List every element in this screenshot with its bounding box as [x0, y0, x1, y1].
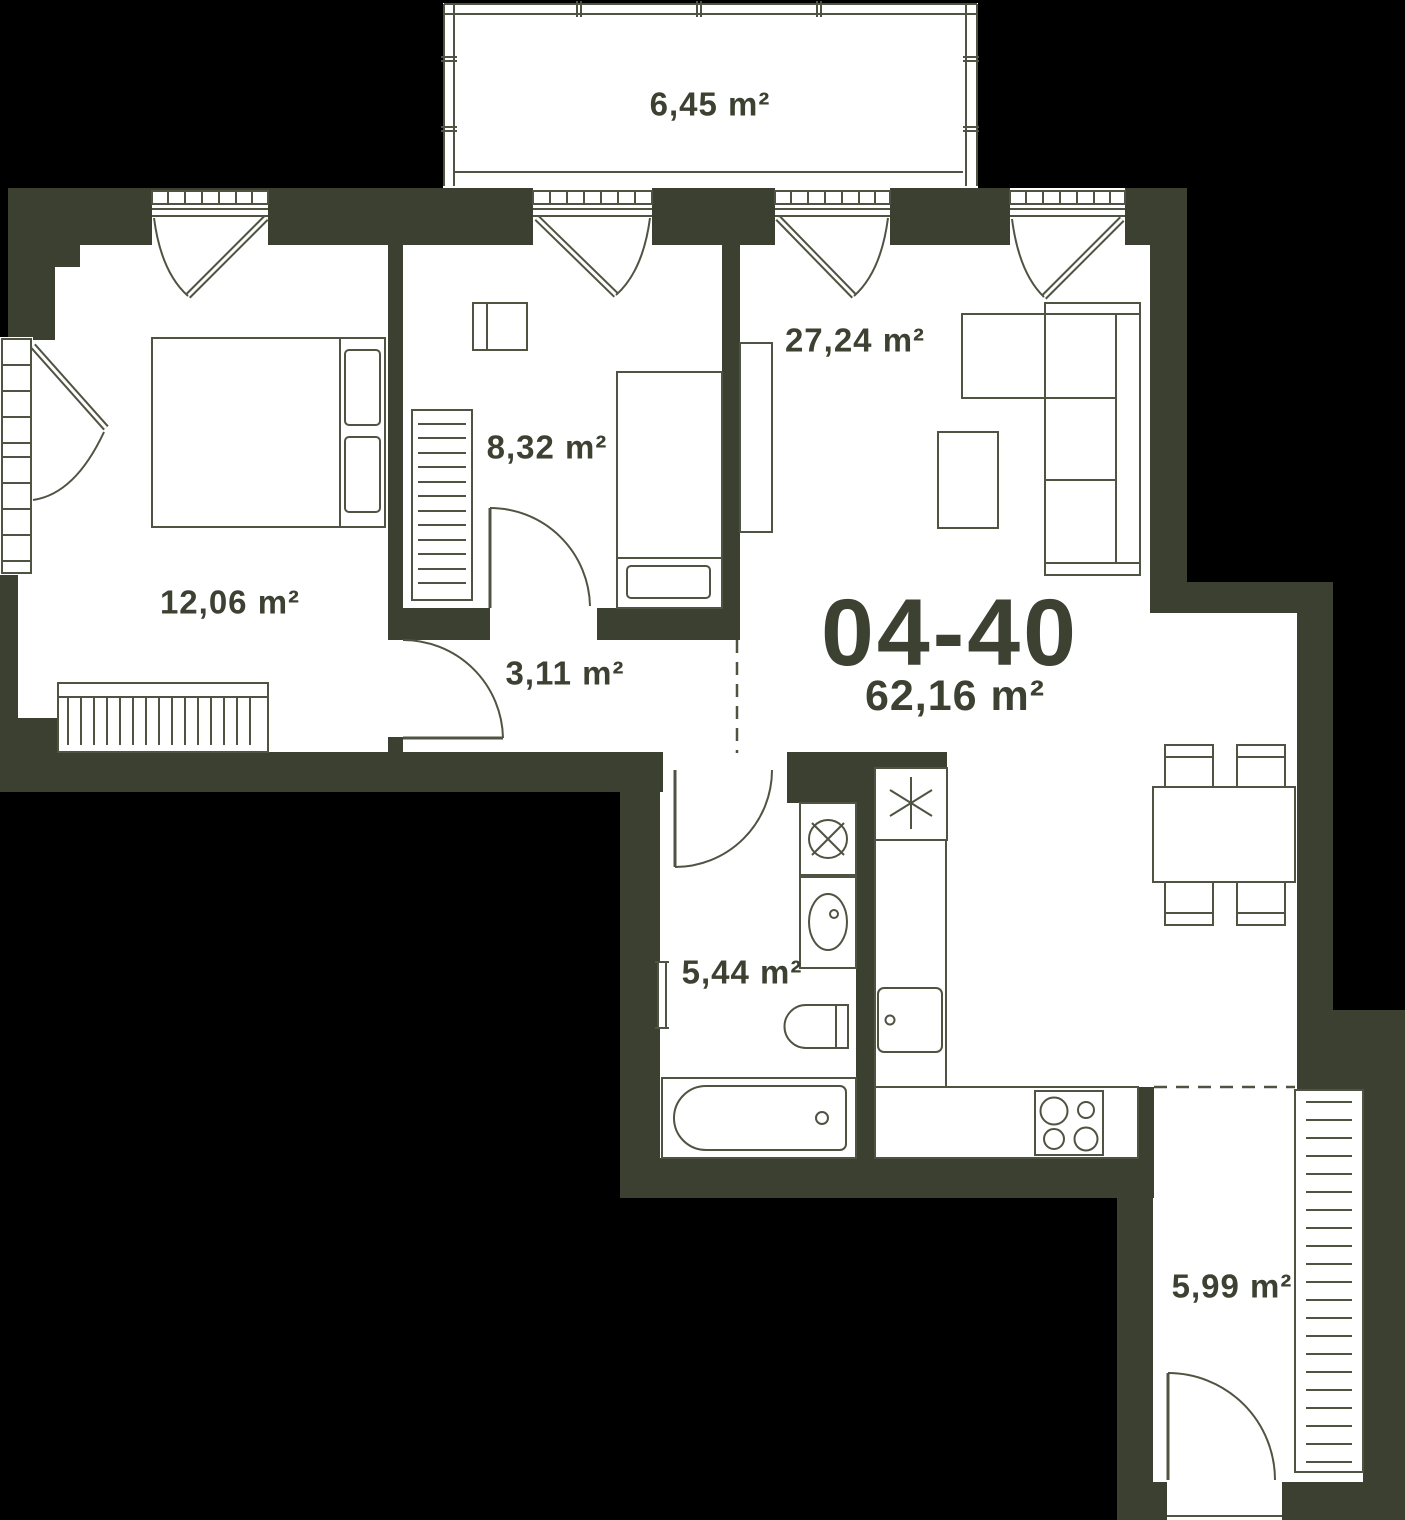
washing-machine-icon: [800, 803, 856, 875]
double-bed-icon: [152, 338, 385, 527]
towel-radiator-icon: [655, 962, 669, 1028]
unit-number: 04-40: [821, 580, 1079, 686]
sink-icon: [800, 877, 856, 968]
toilet-icon: [785, 1005, 849, 1048]
unit-total-area: 62,16 m²: [865, 672, 1045, 720]
living-room-area-label: 27,24 m²: [785, 322, 925, 359]
dining-table-icon: [1153, 787, 1295, 882]
hallway-area-label: 3,11 m²: [506, 655, 625, 692]
floor-plan: 6,45 m² 12,06 m² 8,32 m² 27,24 m² 3,11 m…: [0, 0, 1405, 1520]
floor-plan-drawing: 6,45 m² 12,06 m² 8,32 m² 27,24 m² 3,11 m…: [0, 0, 1405, 1520]
stove-icon: [1035, 1091, 1103, 1155]
desk-icon: [473, 303, 527, 350]
wardrobe-icon: [58, 683, 268, 752]
vent-shaft-icon: [875, 768, 947, 840]
single-bed-icon: [617, 372, 722, 608]
shelf-wardrobe-icon: [412, 410, 472, 600]
bedroom-area-label: 12,06 m²: [160, 584, 300, 621]
tv-cabinet-icon: [740, 343, 772, 532]
bathroom-area-label: 5,44 m²: [682, 954, 803, 991]
kitchen-sink-icon: [878, 988, 942, 1052]
bathtub-icon: [662, 1078, 856, 1158]
coffee-table-icon: [938, 432, 998, 528]
bedroom-small-area-label: 8,32 m²: [487, 429, 608, 466]
balcony-top-area-label: 6,45 m²: [650, 86, 771, 123]
balcony-bottom-area-label: 5,99 m²: [1172, 1268, 1293, 1305]
